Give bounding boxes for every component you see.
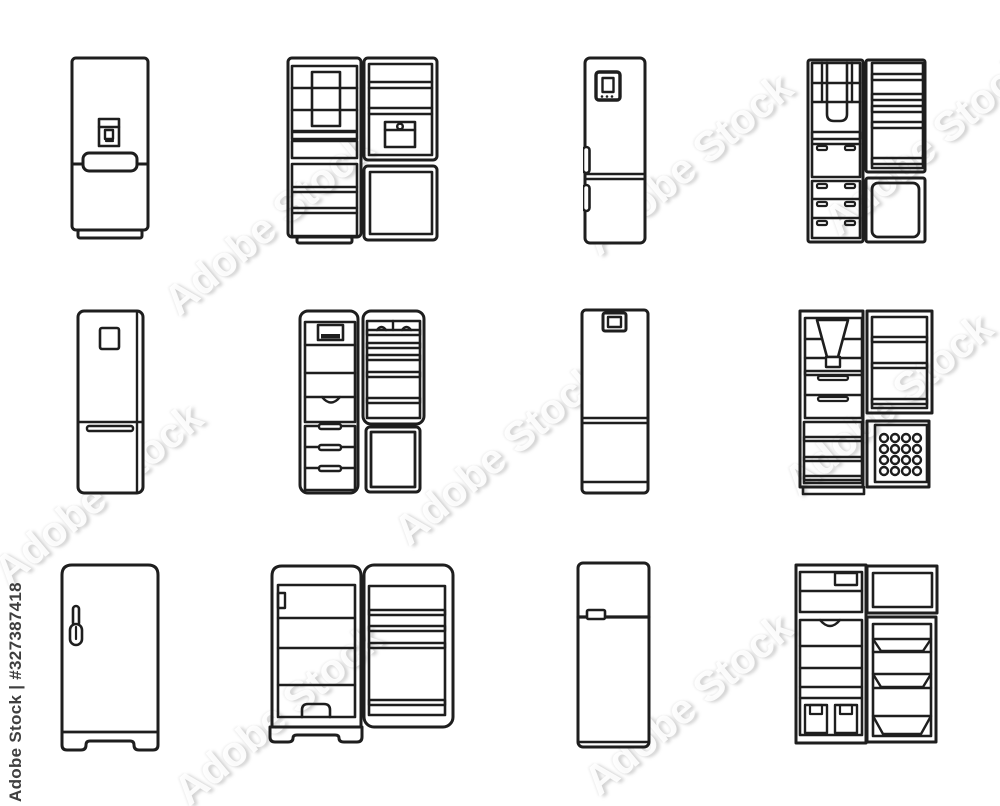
fridge-icon-cell-3 bbox=[583, 56, 649, 246]
fridge-display-closed-icon bbox=[583, 56, 649, 246]
fridge-icon-cell-2 bbox=[286, 56, 440, 246]
fridge-top-freezer-open-icon bbox=[793, 563, 940, 747]
fridge-icon-cell-10 bbox=[268, 563, 456, 747]
fridge-icon-cell-9 bbox=[60, 563, 162, 753]
fridge-open-drawers-icon bbox=[806, 58, 928, 244]
fridge-panel-closed-icon bbox=[76, 309, 146, 497]
fridge-icon-cell-7 bbox=[580, 305, 652, 497]
fridge-icon-cell-6 bbox=[298, 309, 428, 497]
fridge-open-icebox-icon bbox=[286, 56, 440, 246]
stock-id-watermark: Adobe Stock | #327387418 bbox=[6, 582, 26, 802]
fridge-icon-cell-12 bbox=[793, 563, 940, 747]
fridge-icon-cell-8 bbox=[798, 309, 938, 499]
fridge-top-control-closed-icon bbox=[580, 305, 652, 497]
fridge-icon-cell-4 bbox=[806, 58, 928, 244]
fridge-retro-open-icon bbox=[268, 563, 456, 747]
fridge-open-ice-tray-icon bbox=[798, 309, 938, 499]
fridge-open-bottom-freezer-icon bbox=[298, 309, 428, 497]
fridge-retro-closed-icon bbox=[60, 563, 162, 753]
fridge-dispenser-closed-icon bbox=[70, 56, 150, 242]
fridge-icon-cell-1 bbox=[70, 56, 150, 242]
fridge-icon-cell-5 bbox=[76, 309, 146, 497]
fridge-icon-cell-11 bbox=[576, 561, 654, 751]
fridge-top-freezer-closed-icon bbox=[576, 561, 654, 751]
stock-image-canvas: Adobe Stock Adobe Stock Adobe Stock Adob… bbox=[0, 0, 1000, 806]
